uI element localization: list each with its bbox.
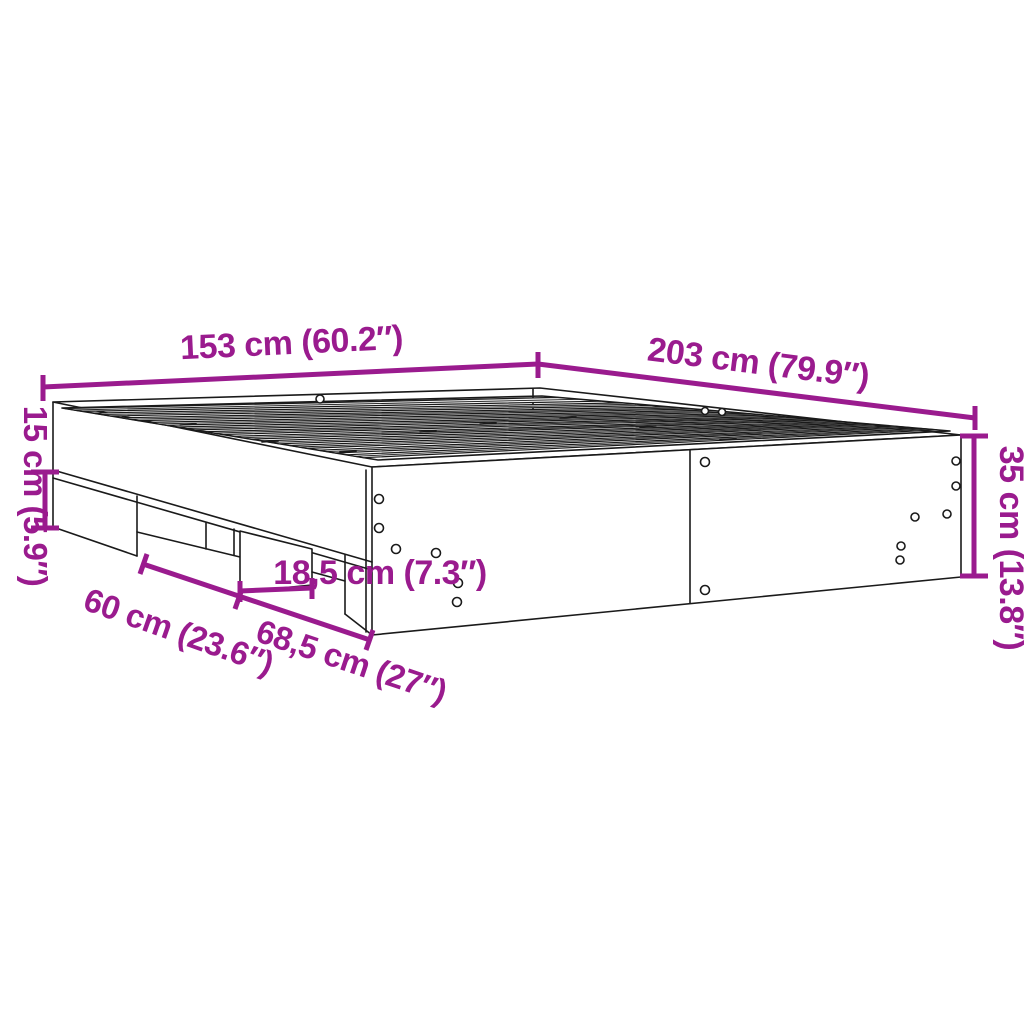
width-dimension-label: 153 cm (60.2″) xyxy=(179,319,403,367)
height-dimension-label: 35 cm (13.8″) xyxy=(992,446,1024,650)
foot-width-dimension-label: 18,5 cm (7.3″) xyxy=(273,554,486,592)
foot-gap-left-dimension-label: 60 cm (23.6″) xyxy=(79,581,278,682)
rail-height-dimension: 15 cm (5.9″) xyxy=(17,406,59,586)
length-dimension-label: 203 cm (79.9″) xyxy=(645,330,871,395)
width-dimension: 153 cm (60.2″) xyxy=(43,319,538,401)
height-dimension: 35 cm (13.8″) xyxy=(960,436,1024,650)
side-rail-bottom-edge xyxy=(53,470,372,562)
dimension-diagram: 153 cm (60.2″) 203 cm (79.9″) 35 cm (13.… xyxy=(0,0,1024,1024)
bed-frame-drawing xyxy=(53,388,961,635)
front-side-panel xyxy=(366,435,961,635)
rail-height-dimension-label: 15 cm (5.9″) xyxy=(17,406,54,586)
foot-left-corner xyxy=(53,496,137,556)
bed-frame-diagram-canvas: 153 cm (60.2″) 203 cm (79.9″) 35 cm (13.… xyxy=(0,0,1024,1024)
